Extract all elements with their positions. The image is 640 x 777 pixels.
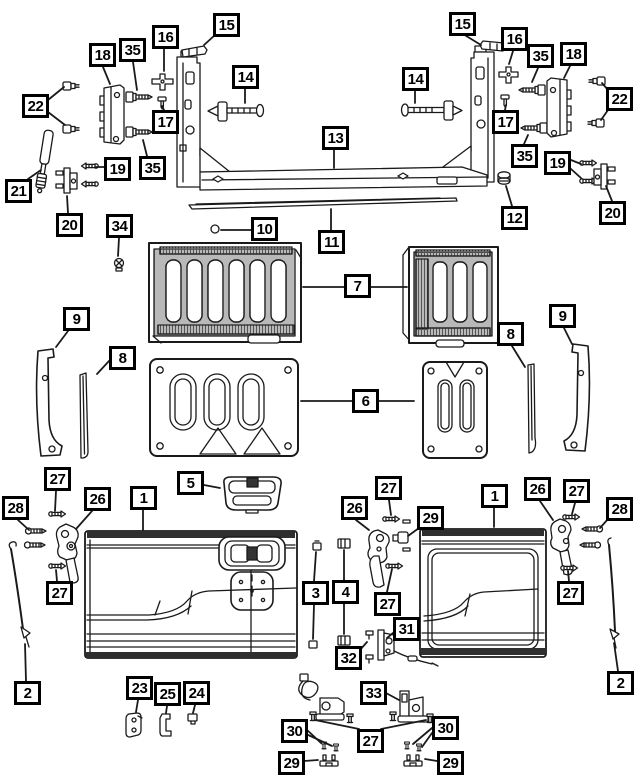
callout-14-right[interactable]: 14 <box>402 67 429 91</box>
callout-35-left-top[interactable]: 35 <box>119 38 146 62</box>
part-22-plug-left-bottom <box>63 125 79 133</box>
part-30-stud-right-1 <box>405 742 410 749</box>
part-14-pivot-bolt-left <box>208 102 264 121</box>
callout-8-right[interactable]: 8 <box>497 322 524 346</box>
part-5-handle-bezel <box>224 477 281 513</box>
callout-7[interactable]: 7 <box>344 274 371 298</box>
callout-16-right[interactable]: 16 <box>501 27 528 51</box>
callout-24[interactable]: 24 <box>183 681 210 705</box>
callout-4[interactable]: 4 <box>332 580 359 604</box>
part-25-bracket <box>160 714 171 736</box>
callout-29-bottom-right[interactable]: 29 <box>437 751 464 775</box>
part-27-stud-2 <box>347 714 353 723</box>
part-35-bolt-right-top <box>519 85 545 95</box>
part-27-screw-left-top <box>49 511 66 517</box>
callout-35-left-bottom[interactable]: 35 <box>139 156 166 180</box>
part-7-grate-right <box>403 247 498 347</box>
part-29-clip-bottom-left <box>320 755 338 766</box>
part-24-clip <box>188 714 197 724</box>
callout-28-right[interactable]: 28 <box>606 497 633 521</box>
callout-27-mid-bottom[interactable]: 27 <box>374 592 401 616</box>
callout-1-right[interactable]: 1 <box>481 484 508 508</box>
callout-14-left[interactable]: 14 <box>232 65 259 89</box>
part-29-clip-bottom-right <box>404 755 422 766</box>
part-7-grate-left <box>149 243 301 343</box>
part-6-panel-right <box>423 362 487 458</box>
part-4-clip-top <box>338 539 350 548</box>
callout-8-left[interactable]: 8 <box>109 346 136 370</box>
part-22-plug-left-top <box>63 82 79 90</box>
part-3-clip-bottom <box>309 641 317 648</box>
callout-29-mid[interactable]: 29 <box>417 506 444 530</box>
callout-25[interactable]: 25 <box>154 682 181 706</box>
callout-22-left[interactable]: 22 <box>22 94 49 118</box>
callout-27-mid-top[interactable]: 27 <box>375 476 402 500</box>
part-9-bracket-left <box>37 349 62 456</box>
part-15-bracket-left <box>182 46 207 57</box>
callout-30-left[interactable]: 30 <box>281 719 308 743</box>
part-28-bolt-left-2 <box>25 542 46 548</box>
callout-22-right[interactable]: 22 <box>606 87 633 111</box>
callout-18-left[interactable]: 18 <box>89 43 116 67</box>
part-34-rivet <box>115 259 124 272</box>
part-32-rivet-top <box>366 631 373 639</box>
callout-21[interactable]: 21 <box>5 179 32 203</box>
callout-35-right-bottom[interactable]: 35 <box>511 144 538 168</box>
part-21-strut <box>35 130 54 194</box>
part-18-plate-left <box>100 85 124 144</box>
part-33-actuator-right <box>398 691 428 722</box>
callout-9-right[interactable]: 9 <box>549 304 576 328</box>
callout-16-left[interactable]: 16 <box>152 25 179 49</box>
part-26-latch-mid <box>368 530 389 587</box>
callout-9-left[interactable]: 9 <box>63 307 90 331</box>
callout-5[interactable]: 5 <box>177 471 204 495</box>
part-18-plate-right <box>547 78 571 137</box>
callout-15-right[interactable]: 15 <box>449 12 476 36</box>
part-28-bolt-right-1 <box>582 526 603 532</box>
part-20-bracket-left <box>56 168 77 193</box>
diagram-artwork <box>0 0 640 777</box>
callout-17-left[interactable]: 17 <box>152 110 179 134</box>
part-27-screw-left-bottom <box>49 563 66 569</box>
part-23-bracket <box>126 713 142 737</box>
part-26-latch-left <box>56 524 78 583</box>
callout-35-right-top[interactable]: 35 <box>527 44 554 68</box>
part-16-fitting-right <box>499 67 518 83</box>
part-2-cable-left <box>9 542 30 647</box>
callout-34[interactable]: 34 <box>106 214 133 238</box>
callout-32[interactable]: 32 <box>335 646 362 670</box>
part-32-rivet-bottom <box>366 655 373 663</box>
callout-27-left-top[interactable]: 27 <box>44 467 71 491</box>
callout-26-left[interactable]: 26 <box>84 487 111 511</box>
callout-26-mid[interactable]: 26 <box>341 496 368 520</box>
callout-33[interactable]: 33 <box>360 681 387 705</box>
callout-11[interactable]: 11 <box>318 230 345 254</box>
callout-3[interactable]: 3 <box>302 581 329 605</box>
callout-30-right[interactable]: 30 <box>432 716 459 740</box>
part-20-bracket-right <box>594 164 615 189</box>
callout-23[interactable]: 23 <box>126 676 153 700</box>
part-19-screw-left-top <box>82 163 99 169</box>
callout-29-bottom-left[interactable]: 29 <box>278 751 305 775</box>
callout-27-right-top[interactable]: 27 <box>563 479 590 503</box>
callout-19-right[interactable]: 19 <box>544 151 571 175</box>
callout-13[interactable]: 13 <box>322 126 349 150</box>
callout-28-left[interactable]: 28 <box>2 496 29 520</box>
part-19-screw-right-top <box>580 160 597 166</box>
callout-18-right[interactable]: 18 <box>560 42 587 66</box>
callout-19-left[interactable]: 19 <box>104 157 131 181</box>
part-30-stud-left-2 <box>334 744 339 751</box>
callout-27-left-bottom[interactable]: 27 <box>46 581 73 605</box>
callout-2-left[interactable]: 2 <box>14 681 41 705</box>
parts-diagram-canvas: 1516351822141719352120341013111516351822… <box>0 0 640 777</box>
part-30-stud-right-2 <box>417 744 422 751</box>
part-12-bushing <box>498 172 510 184</box>
part-9-bracket-right <box>564 344 589 451</box>
callout-31[interactable]: 31 <box>393 617 420 641</box>
part-35-bolt-left-bottom <box>126 127 152 137</box>
part-27-screw-mid-bottom <box>386 563 403 569</box>
part-8-seal-right <box>528 364 536 453</box>
part-35-bolt-left-top <box>126 92 152 102</box>
part-11-molding-strip <box>189 198 457 209</box>
part-27-stud-3 <box>390 712 396 721</box>
part-17-screw-right <box>501 95 509 107</box>
part-1-tailgate-right <box>420 529 546 657</box>
part-16-fitting-left <box>152 74 173 90</box>
callout-2-right[interactable]: 2 <box>607 671 634 695</box>
part-27-screw-mid-top <box>383 516 400 522</box>
callout-17-right[interactable]: 17 <box>492 110 519 134</box>
part-1-tailgate-left <box>85 531 297 658</box>
callout-10[interactable]: 10 <box>251 217 278 241</box>
part-33-actuator-left <box>299 674 344 720</box>
part-27-screw-right-top <box>563 514 580 520</box>
part-8-seal-left <box>80 373 88 458</box>
part-28-bolt-right-2 <box>580 542 601 548</box>
part-3-clip-top <box>313 541 321 550</box>
part-35-bolt-right-bottom <box>521 123 547 133</box>
callout-1-left[interactable]: 1 <box>130 486 157 510</box>
callout-27-right-bottom[interactable]: 27 <box>557 581 584 605</box>
part-19-screw-left-bottom <box>82 181 99 187</box>
part-10-plug-hole <box>211 225 219 233</box>
callout-15-left[interactable]: 15 <box>213 13 240 37</box>
callout-20-right[interactable]: 20 <box>599 201 626 225</box>
callout-12[interactable]: 12 <box>501 206 528 230</box>
callout-26-right[interactable]: 26 <box>524 477 551 501</box>
part-4-clip-bottom <box>338 636 350 645</box>
part-27-screw-right-bottom <box>561 565 578 571</box>
callout-6[interactable]: 6 <box>352 389 379 413</box>
part-2-cable-right <box>608 538 619 648</box>
part-6-panel-left <box>150 359 298 456</box>
part-14-pivot-bolt-right <box>402 101 463 120</box>
callout-20-left[interactable]: 20 <box>56 213 83 237</box>
callout-27-bottom[interactable]: 27 <box>357 729 384 753</box>
